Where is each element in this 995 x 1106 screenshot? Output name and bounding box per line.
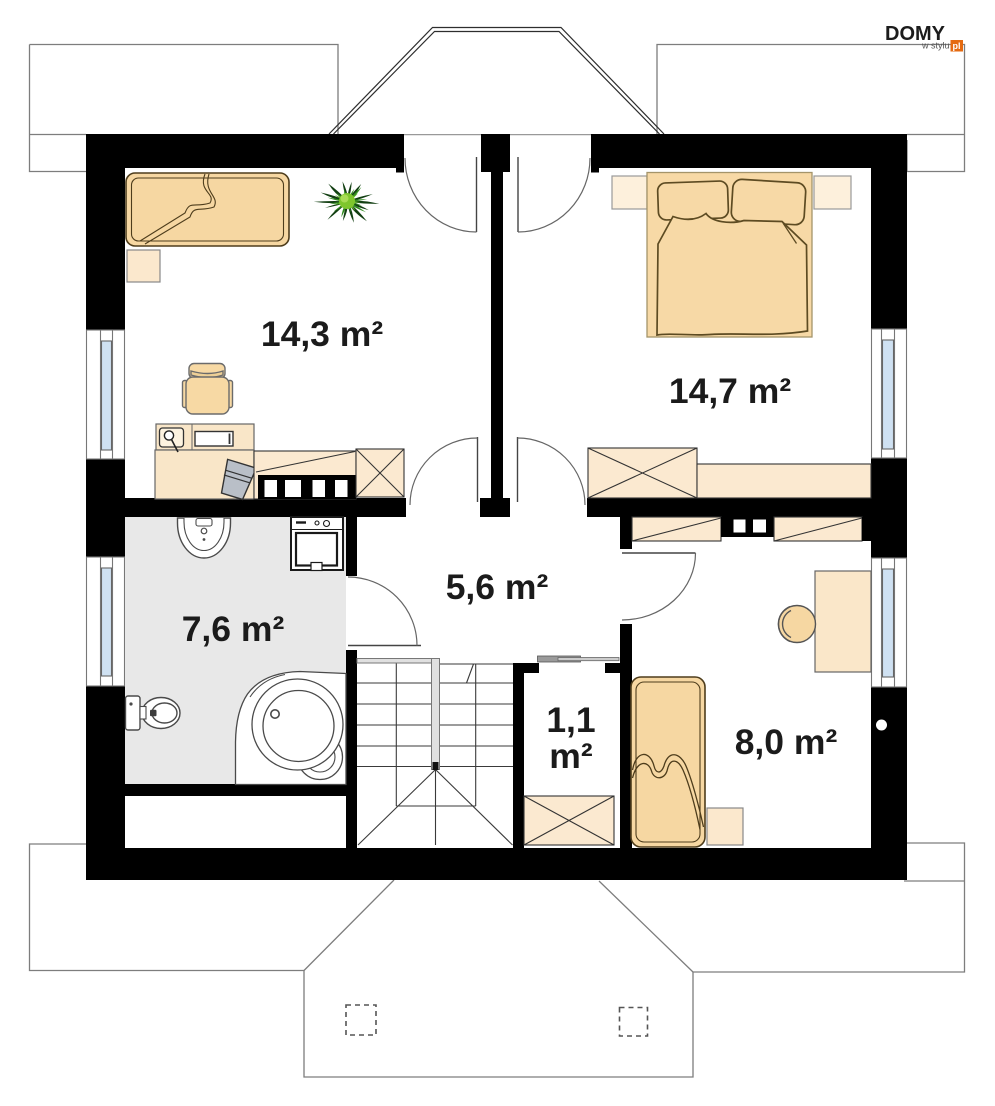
svg-text:w stylu: w stylu xyxy=(921,41,950,51)
svg-text:m²: m² xyxy=(549,736,593,776)
svg-text:14,3 m²: 14,3 m² xyxy=(261,314,384,354)
svg-text:5,6 m²: 5,6 m² xyxy=(446,567,549,607)
svg-text:8,0 m²: 8,0 m² xyxy=(735,722,838,762)
svg-text:pl: pl xyxy=(953,41,961,51)
svg-text:14,7 m²: 14,7 m² xyxy=(669,371,792,411)
svg-text:7,6 m²: 7,6 m² xyxy=(182,609,285,649)
svg-text:1,1: 1,1 xyxy=(546,700,595,740)
